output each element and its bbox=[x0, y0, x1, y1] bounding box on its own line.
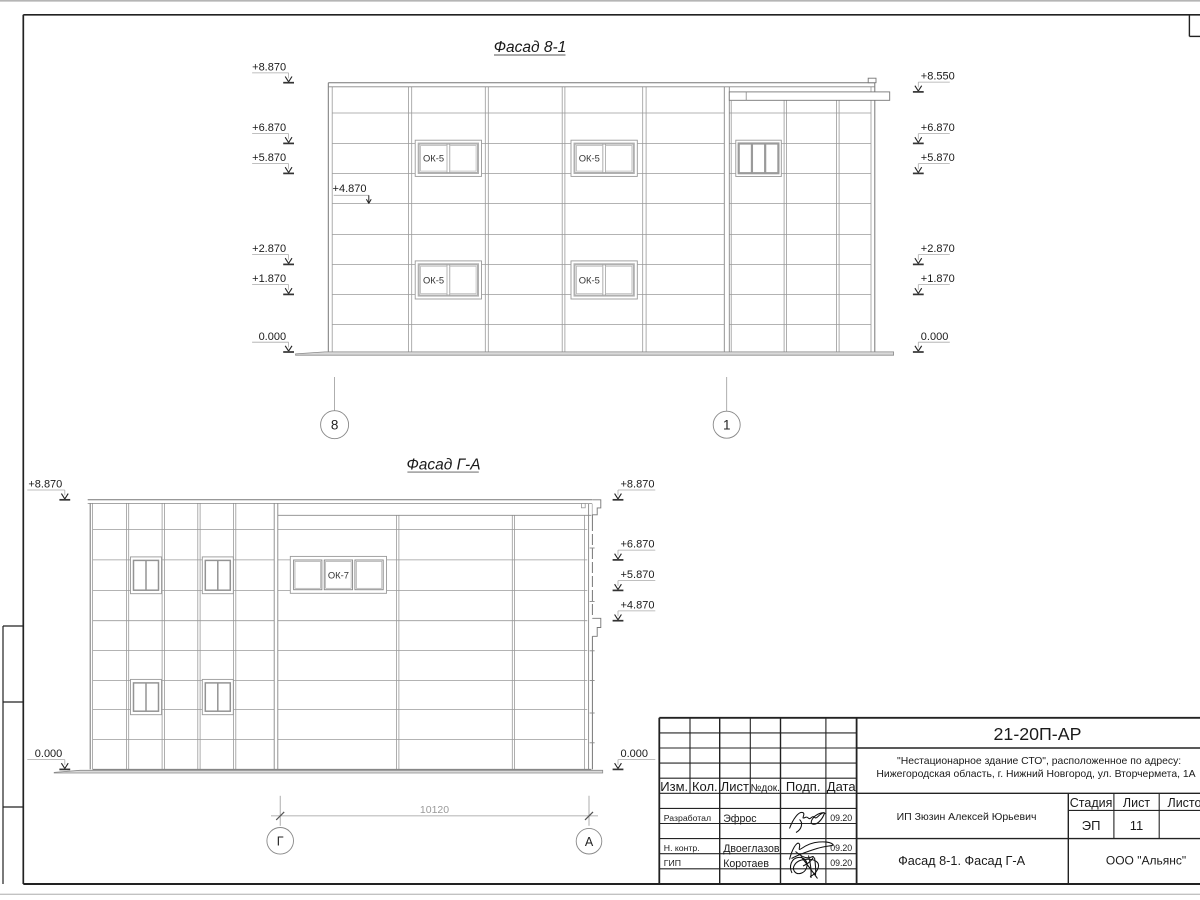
svg-text:09.20: 09.20 bbox=[830, 858, 852, 868]
svg-text:Кол.: Кол. bbox=[692, 779, 718, 794]
svg-text:+4.870: +4.870 bbox=[333, 183, 367, 195]
svg-text:Г: Г bbox=[277, 835, 284, 849]
svg-text:ЭП: ЭП bbox=[1082, 818, 1101, 833]
svg-text:Лист: Лист bbox=[1123, 796, 1150, 810]
svg-text:Лист: Лист bbox=[721, 779, 749, 794]
svg-text:0.000: 0.000 bbox=[35, 748, 63, 760]
svg-text:21-20П-АР: 21-20П-АР bbox=[994, 724, 1082, 744]
svg-text:ИП Зюзин Алексей Юрьевич: ИП Зюзин Алексей Юрьевич bbox=[897, 811, 1037, 823]
svg-text:+6.870: +6.870 bbox=[921, 122, 955, 134]
svg-text:11: 11 bbox=[1130, 818, 1144, 833]
svg-text:Стадия: Стадия bbox=[1070, 796, 1113, 810]
svg-text:Подп.: Подп. bbox=[786, 779, 821, 794]
svg-text:+8.870: +8.870 bbox=[621, 479, 655, 491]
svg-text:Разработал: Разработал bbox=[664, 813, 711, 823]
svg-text:+2.870: +2.870 bbox=[921, 243, 955, 255]
svg-text:+8.870: +8.870 bbox=[28, 479, 62, 491]
svg-text:0.000: 0.000 bbox=[621, 748, 649, 760]
svg-text:ОК-5: ОК-5 bbox=[423, 153, 444, 164]
svg-text:+2.870: +2.870 bbox=[252, 243, 286, 255]
svg-text:+6.870: +6.870 bbox=[252, 122, 286, 134]
svg-text:А: А bbox=[585, 835, 594, 849]
svg-text:Коротаев: Коротаев bbox=[723, 858, 769, 870]
svg-text:"Нестационарное здание СТО", р: "Нестационарное здание СТО", расположенн… bbox=[897, 756, 1181, 767]
svg-text:+1.870: +1.870 bbox=[252, 273, 286, 285]
svg-text:Фасад 8-1: Фасад 8-1 bbox=[494, 39, 567, 56]
svg-text:0.000: 0.000 bbox=[259, 331, 287, 343]
svg-text:ОК-7: ОК-7 bbox=[328, 569, 349, 580]
svg-text:+4.870: +4.870 bbox=[621, 600, 655, 612]
svg-text:+5.870: +5.870 bbox=[252, 152, 286, 164]
svg-text:ОК-5: ОК-5 bbox=[579, 274, 600, 285]
svg-text:1: 1 bbox=[723, 418, 731, 433]
svg-text:Нижегородская область, г. Нижн: Нижегородская область, г. Нижний Новгоро… bbox=[876, 768, 1195, 780]
svg-text:Н. контр.: Н. контр. bbox=[664, 843, 700, 853]
svg-text:+1.870: +1.870 bbox=[921, 273, 955, 285]
svg-text:09.20: 09.20 bbox=[830, 813, 852, 823]
svg-text:+5.870: +5.870 bbox=[621, 569, 655, 581]
svg-text:8: 8 bbox=[331, 418, 339, 433]
svg-text:Дата: Дата bbox=[827, 779, 857, 794]
svg-text:№док.: №док. bbox=[751, 783, 780, 794]
svg-text:ОК-5: ОК-5 bbox=[423, 274, 444, 285]
svg-text:0.000: 0.000 bbox=[921, 331, 949, 343]
svg-text:Листо: Листо bbox=[1168, 796, 1200, 810]
svg-text:10120: 10120 bbox=[420, 804, 449, 816]
svg-text:+5.870: +5.870 bbox=[921, 152, 955, 164]
svg-text:+6.870: +6.870 bbox=[621, 539, 655, 551]
svg-text:ГИП: ГИП bbox=[664, 858, 681, 868]
svg-text:Фасад 8-1. Фасад Г-А: Фасад 8-1. Фасад Г-А bbox=[898, 854, 1026, 868]
svg-text:Фасад Г-А: Фасад Г-А bbox=[406, 456, 480, 473]
svg-text:+8.870: +8.870 bbox=[252, 62, 286, 74]
svg-text:Эфрос: Эфрос bbox=[723, 813, 757, 825]
svg-text:+8.550: +8.550 bbox=[921, 71, 955, 83]
svg-text:Изм.: Изм. bbox=[660, 779, 688, 794]
svg-text:ОК-5: ОК-5 bbox=[579, 153, 600, 164]
svg-text:Двоеглазов: Двоеглазов bbox=[723, 843, 780, 855]
svg-text:ООО "Альянс": ООО "Альянс" bbox=[1106, 853, 1186, 867]
